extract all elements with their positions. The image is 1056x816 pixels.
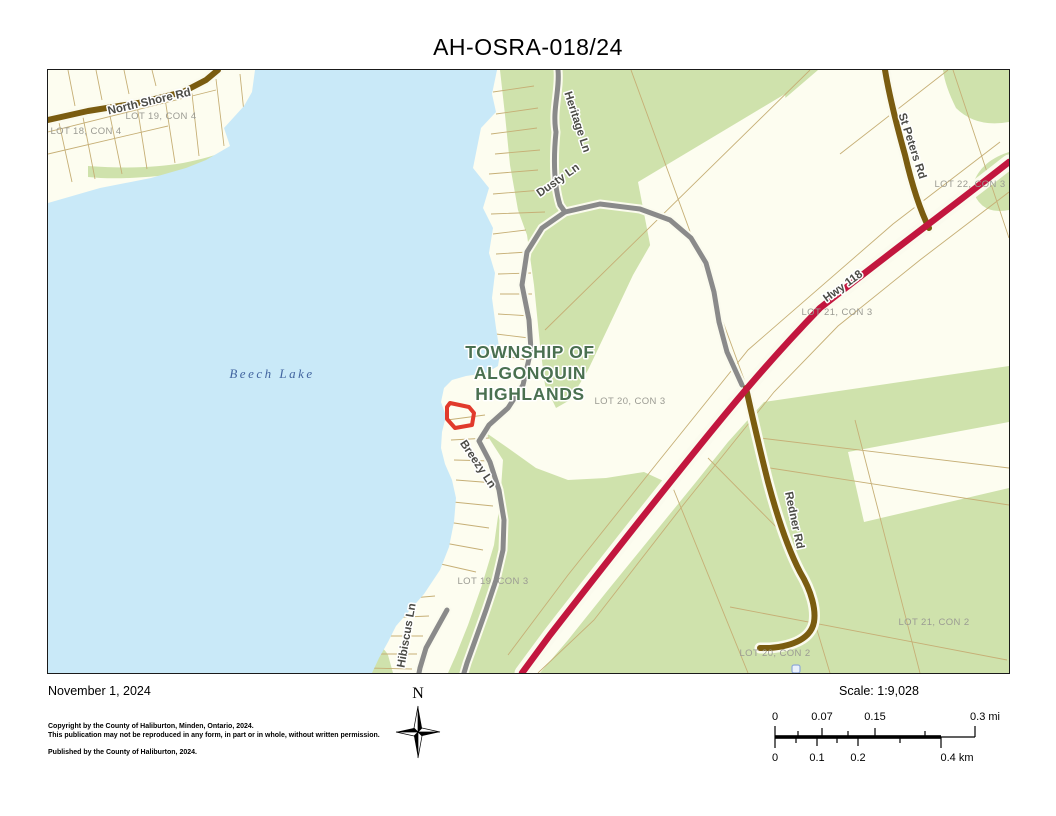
scale-bar: 0 0.07 0.15 0.3 mi 0 0.1 0.2 0.4 km [744,676,1014,768]
lot-label: LOT 21, CON 2 [898,617,969,628]
lot-label: LOT 22, CON 3 [934,179,1005,190]
north-label: N [412,685,424,702]
lot-label: LOT 20, CON 2 [739,648,810,659]
lot-label: LOT 20, CON 3 [594,396,665,407]
compass-star-icon [396,706,440,758]
scale-mi-tick-2: 0.15 [864,711,885,723]
township-label-line1: TOWNSHIP OF [465,342,594,362]
township-label-line2: ALGONQUIN [474,363,586,383]
lot-label: LOT 21, CON 3 [801,307,872,318]
scale-bar-graphic: 0 0.07 0.15 0.3 mi 0 0.1 0.2 0.4 km [772,711,1000,764]
scale-mi-tick-0: 0 [772,711,778,723]
scale-mi-tick-3: 0.3 mi [970,711,1000,723]
lot-label: LOT 18, CON 4 [50,126,121,137]
map-canvas: LOT 19, CON 4 LOT 18, CON 4 LOT 22, CON … [47,69,1010,674]
published-line: Published by the County of Haliburton, 2… [48,748,380,757]
scale-km-tick-0: 0 [772,752,778,764]
map-svg: LOT 19, CON 4 LOT 18, CON 4 LOT 22, CON … [48,70,1009,673]
map-sheet: AH-OSRA-018/24 [0,0,1056,816]
lake-label: Beech Lake [229,366,314,381]
copyright-block: Copyright by the County of Haliburton, M… [48,722,380,757]
lot-label: LOT 19, CON 3 [457,576,528,587]
page-title: AH-OSRA-018/24 [0,34,1056,61]
north-arrow: N [394,680,442,772]
scale-mi-tick-1: 0.07 [811,711,832,723]
scale-km-tick-1: 0.1 [809,752,824,764]
township-label-line3: HIGHLANDS [475,384,584,404]
scale-km-tick-3: 0.4 km [940,752,973,764]
map-marker-icon [792,665,800,673]
copyright-line2: This publication may not be reproduced i… [48,731,380,740]
lot-label: LOT 19, CON 4 [125,111,196,122]
copyright-line1: Copyright by the County of Haliburton, M… [48,722,380,731]
map-date: November 1, 2024 [48,684,151,698]
scale-km-tick-2: 0.2 [850,752,865,764]
